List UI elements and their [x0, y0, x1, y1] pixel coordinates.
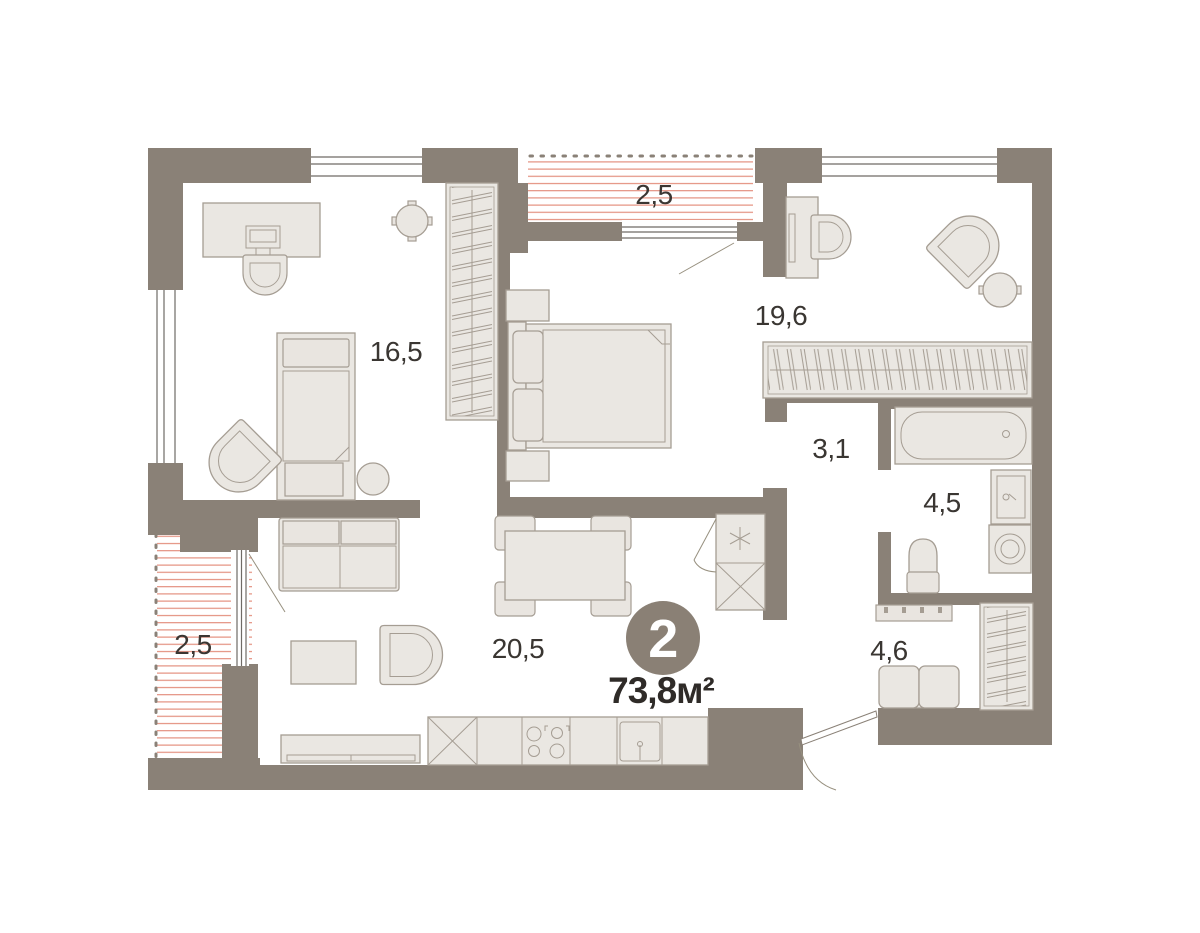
sink	[991, 470, 1031, 524]
bathtub	[895, 407, 1032, 464]
hall-wardrobe	[980, 603, 1033, 710]
bench	[879, 666, 959, 708]
nightstand	[506, 451, 549, 481]
label-bathroom: 4,5	[923, 487, 960, 518]
badge-total-area: 73,8м²	[608, 670, 714, 711]
label-balcony-top: 2,5	[635, 179, 672, 210]
coffee-table	[291, 641, 356, 684]
single-bed	[277, 333, 355, 500]
window-room1-left	[150, 290, 180, 463]
dining-set	[495, 516, 631, 616]
sofa	[279, 518, 399, 591]
long-wardrobe	[763, 342, 1032, 398]
pouf	[357, 463, 389, 495]
coat-hooks	[876, 605, 952, 621]
entrance-door	[799, 711, 877, 790]
desk-chair	[811, 215, 851, 259]
pillow	[283, 339, 349, 367]
balcony-door-bedroom	[622, 220, 737, 274]
nightstand	[506, 290, 549, 321]
tv-stand	[281, 735, 420, 763]
double-bed	[508, 322, 671, 450]
label-bedroom: 19,6	[755, 300, 808, 331]
kitchen-counter	[428, 717, 708, 765]
wardrobe	[446, 183, 498, 420]
balcony-door-living	[231, 550, 285, 666]
side-table	[979, 273, 1021, 307]
armchair	[380, 626, 443, 685]
washing-machine	[989, 525, 1031, 573]
window-bedroom-top	[822, 150, 997, 182]
pillow	[513, 331, 543, 383]
dining-table	[505, 531, 625, 600]
label-room1: 16,5	[370, 336, 423, 367]
badge-room-count: 2	[648, 609, 678, 669]
label-living: 20,5	[492, 633, 545, 664]
apartment-badge: 2 73,8м²	[608, 601, 714, 711]
window-room1-top	[311, 150, 422, 182]
stool	[392, 201, 432, 241]
floor-plan-canvas: 16,5 19,6 2,5 3,1 4,5 4,6 20,5 2,5 2 73,…	[0, 0, 1200, 933]
utility-cabinet	[694, 514, 765, 610]
desk-chair	[243, 255, 287, 295]
label-corridor: 3,1	[812, 433, 849, 464]
label-hallway: 4,6	[870, 635, 907, 666]
armchair	[197, 418, 283, 504]
label-balcony-left: 2,5	[174, 629, 211, 660]
toilet	[907, 539, 939, 593]
room1-furniture	[197, 183, 498, 504]
bathroom-fixtures	[895, 407, 1032, 593]
pillow	[513, 389, 543, 441]
floor-plan: 16,5 19,6 2,5 3,1 4,5 4,6 20,5 2,5 2 73,…	[0, 0, 1200, 933]
